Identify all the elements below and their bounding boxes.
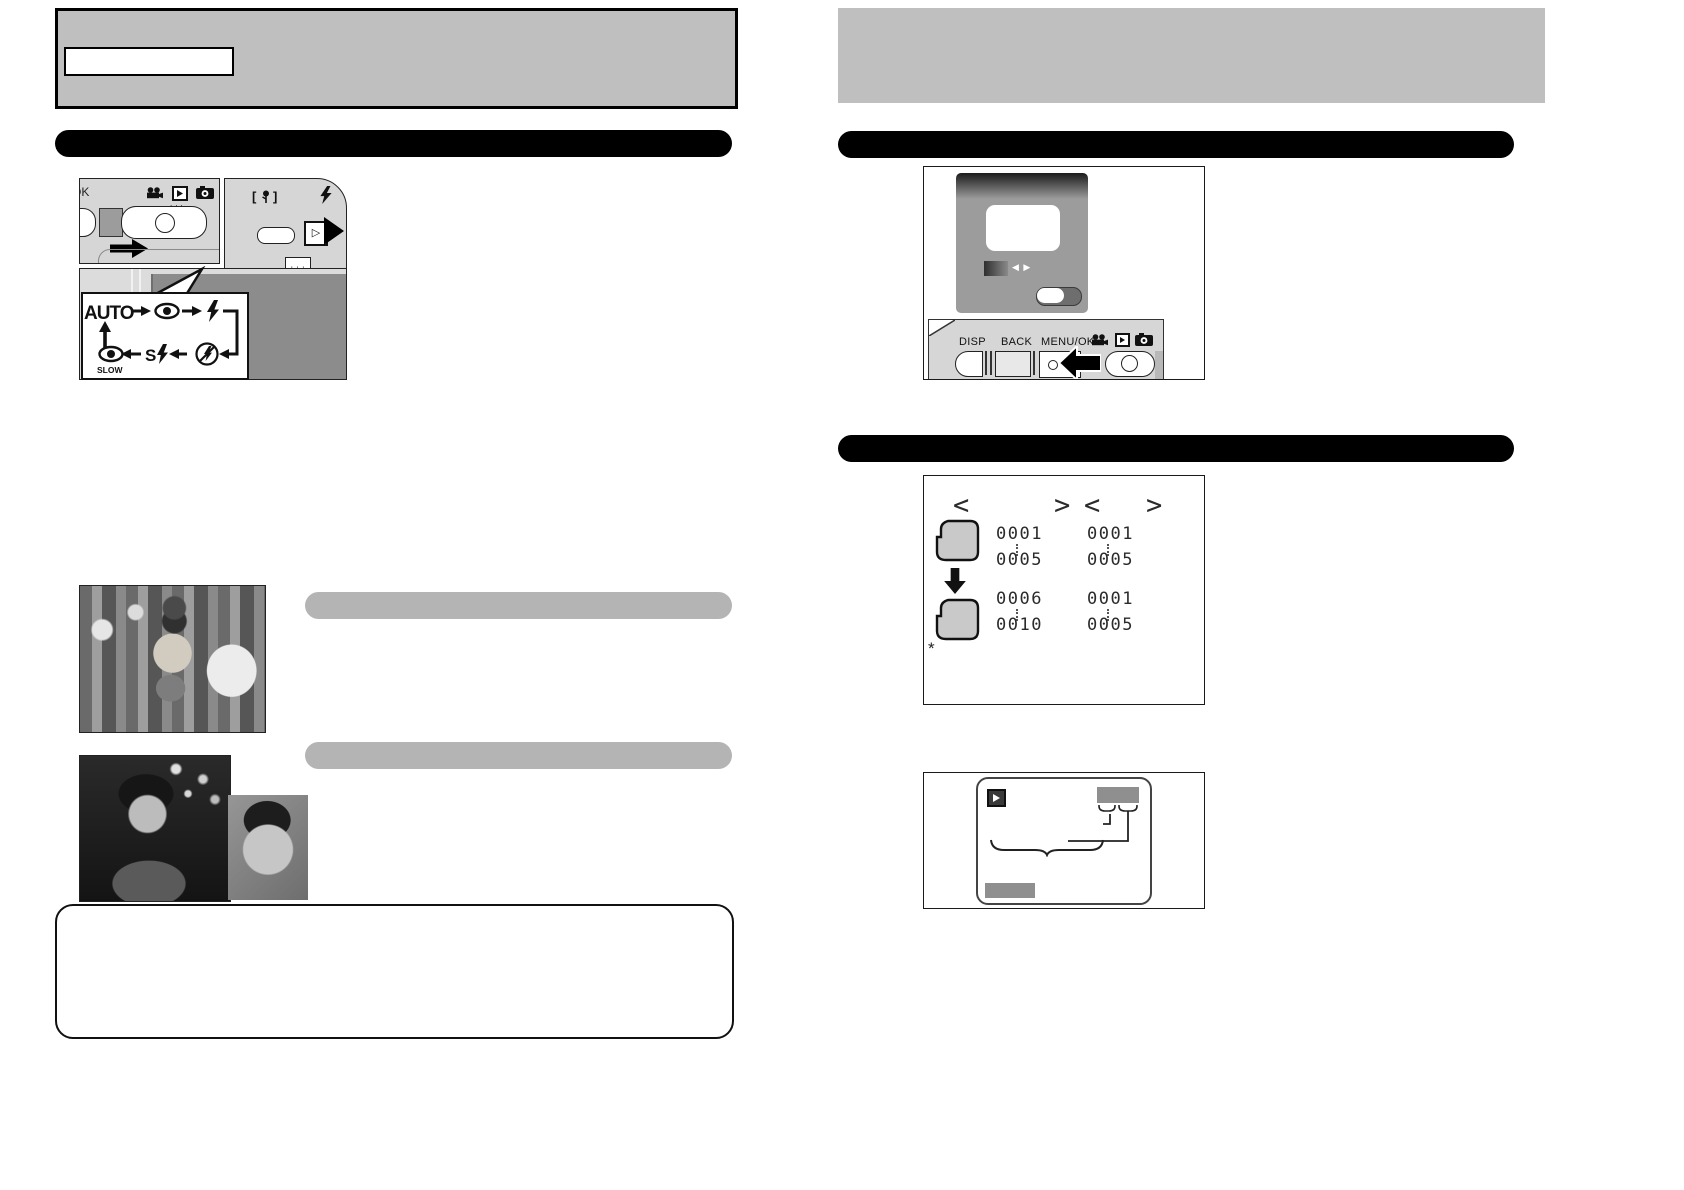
frame-number: 0005 bbox=[1087, 550, 1134, 570]
exposure-button bbox=[257, 227, 295, 244]
flash-select-triangle: ▷ bbox=[312, 227, 320, 239]
memory-card-icon bbox=[933, 519, 981, 562]
lcd-screen-right: ◀ ▶ bbox=[956, 173, 1088, 313]
menu-ok-dot bbox=[1048, 360, 1058, 370]
playback-icon bbox=[987, 789, 1006, 807]
panel-divider bbox=[990, 351, 992, 375]
col2-open-bracket: < bbox=[1084, 490, 1100, 521]
playback-icon bbox=[1115, 333, 1130, 347]
lcd-ok-pill bbox=[1036, 287, 1082, 306]
disp-button-label: DISP bbox=[959, 336, 986, 348]
macro-icon bbox=[261, 190, 271, 204]
flash-mode-cycle-diagram: AUTO SLOW S bbox=[83, 294, 243, 374]
manual-page: OK ... [ bbox=[0, 0, 1684, 1190]
footnote-marker: * bbox=[928, 639, 935, 659]
press-menu-ok-arrow bbox=[1059, 346, 1101, 380]
back-button-label: BACK bbox=[1001, 336, 1032, 348]
suppressed-flash-icon bbox=[197, 344, 218, 365]
panel-corner-notch bbox=[929, 320, 955, 336]
press-flash-arrow bbox=[324, 217, 344, 245]
slow-synchro-s: S bbox=[145, 346, 156, 365]
caption-pill-1 bbox=[305, 592, 732, 619]
mode-oval-knob bbox=[1121, 355, 1138, 372]
flash-auto-label: AUTO bbox=[84, 303, 134, 324]
mode-oval-button bbox=[1105, 351, 1155, 377]
frame-number: 0005 bbox=[1087, 615, 1134, 635]
caption-pill-2 bbox=[305, 742, 732, 769]
menu-ok-illustration-frame: ◀ ▶ DISP BACK MENU/OK bbox=[923, 166, 1205, 380]
frame-number: 0001 bbox=[996, 524, 1043, 544]
sample-photo-carousel bbox=[79, 585, 266, 733]
mode-slider-knob bbox=[155, 213, 175, 233]
frame-number-diagram: < > < > 0001 0005 0001 0005 0006 0010 00… bbox=[923, 475, 1205, 705]
movie-icon bbox=[1091, 334, 1108, 346]
panel-divider bbox=[1033, 351, 1035, 375]
left-header-panel bbox=[55, 8, 738, 109]
col1-close-bracket: > bbox=[1054, 490, 1070, 521]
panel-grip bbox=[1155, 351, 1163, 380]
right-section-title-bar-1 bbox=[838, 131, 1514, 158]
camera-icon bbox=[1135, 333, 1153, 346]
frame-number: 0001 bbox=[1087, 524, 1134, 544]
camera-icon bbox=[196, 186, 214, 199]
movie-icon bbox=[146, 187, 163, 199]
panel-divider bbox=[985, 351, 987, 375]
disp-button bbox=[955, 351, 983, 377]
lcd-nav-arrows: ◀ ▶ bbox=[1012, 262, 1031, 273]
sample-photo-night bbox=[79, 755, 231, 902]
macro-bracket-left: [ bbox=[252, 189, 256, 204]
flash-button-illustration: [ ] ▷ +++ bbox=[224, 178, 347, 274]
body-crease-line bbox=[98, 249, 220, 264]
right-section-title-bar-2 bbox=[838, 435, 1514, 462]
right-header-panel bbox=[838, 8, 1545, 103]
mode-slider bbox=[121, 206, 207, 239]
macro-bracket-right: ] bbox=[273, 189, 277, 204]
card-change-down-arrow bbox=[944, 568, 966, 594]
back-button bbox=[995, 351, 1031, 377]
frame-number: 0001 bbox=[1087, 589, 1134, 609]
slow-label: SLOW bbox=[97, 365, 123, 374]
forced-flash-icon bbox=[207, 300, 219, 322]
switch-track-dark bbox=[99, 208, 123, 237]
memory-label-highlight bbox=[985, 883, 1035, 898]
col2-close-bracket: > bbox=[1146, 490, 1162, 521]
switch-end-button bbox=[79, 208, 96, 237]
slow-synchro-bolt bbox=[157, 344, 168, 364]
sample-photo-closeup-inset bbox=[228, 795, 308, 900]
lcd-selected-item bbox=[984, 261, 1008, 276]
menu-ok-partial-label: OK bbox=[79, 185, 89, 199]
frame-number: 0005 bbox=[996, 550, 1043, 570]
lcd-ok-pill-knob bbox=[1037, 288, 1064, 303]
flash-icon bbox=[320, 186, 332, 204]
left-header-label-box bbox=[64, 47, 234, 76]
frame-number: 0010 bbox=[996, 615, 1043, 635]
left-section-title-bar bbox=[55, 130, 732, 157]
brace-down-large bbox=[990, 839, 1104, 857]
camera-top-panel: DISP BACK MENU/OK bbox=[928, 319, 1164, 380]
playback-screen-diagram bbox=[923, 772, 1205, 909]
frame-number-highlight bbox=[1097, 787, 1139, 803]
col1-open-bracket: < bbox=[953, 490, 969, 521]
memory-card-icon bbox=[933, 598, 981, 641]
frame-number: 0006 bbox=[996, 589, 1043, 609]
mode-switch-illustration: OK ... bbox=[79, 178, 220, 264]
lcd-message-box bbox=[986, 205, 1060, 251]
note-outline-box bbox=[55, 904, 734, 1039]
flash-mode-cycle-callout: AUTO SLOW S bbox=[81, 292, 249, 380]
